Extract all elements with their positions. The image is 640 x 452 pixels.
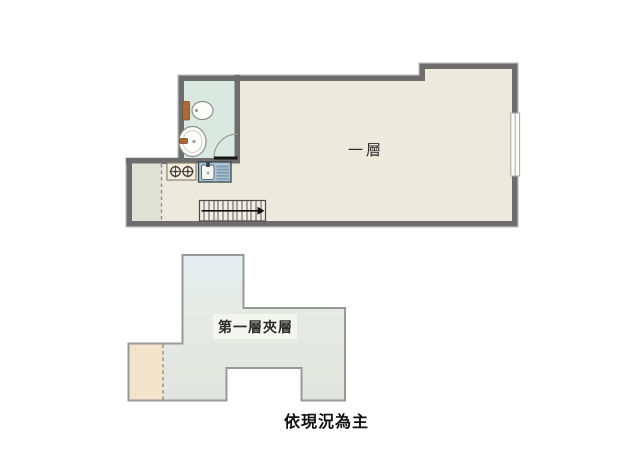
footnote-text: 依現況為主 <box>284 408 369 432</box>
staircase-icon <box>200 201 266 222</box>
mezzanine-label: 第一層夾層 <box>218 317 293 337</box>
floor-plan-page: 一層 第一層夾層 依現況為主 <box>0 0 640 452</box>
kitchen-sink-icon <box>199 162 232 182</box>
window-icon <box>511 113 520 176</box>
washbasin-icon <box>179 127 206 157</box>
first-floor-plan <box>126 63 520 227</box>
bathroom-right-wall <box>235 75 241 163</box>
toilet-icon <box>183 102 214 121</box>
annex-area <box>132 164 162 222</box>
mezzanine-tan-area <box>130 345 164 400</box>
floor-plan-graphic <box>0 0 640 452</box>
stove-icon <box>167 163 196 180</box>
first-floor-label: 一層 <box>348 139 384 160</box>
